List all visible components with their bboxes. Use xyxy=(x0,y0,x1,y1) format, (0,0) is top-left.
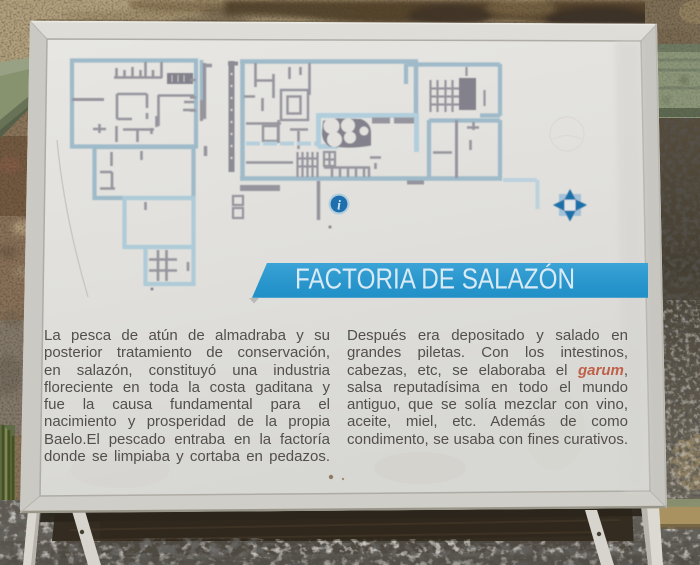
svg-text:FACTORIA DE SALAZÓN: FACTORIA DE SALAZÓN xyxy=(295,264,575,296)
svg-text:i: i xyxy=(337,198,341,213)
